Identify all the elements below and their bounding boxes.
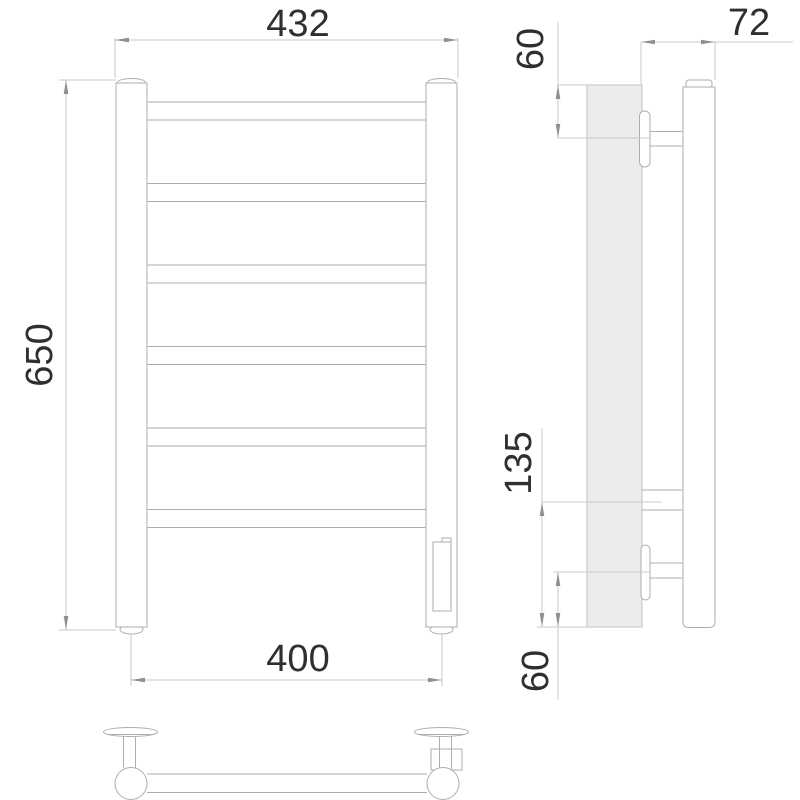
towel-rail-drawing: 432 650 400 bbox=[0, 0, 800, 800]
bottom-view bbox=[104, 728, 469, 800]
bar-6 bbox=[147, 510, 426, 528]
bottom-view-left-post-section bbox=[115, 768, 147, 800]
dimension-overall-width: 432 bbox=[115, 3, 458, 78]
dimension-depth: 72 bbox=[641, 2, 793, 85]
side-view bbox=[587, 80, 715, 628]
wall-panel bbox=[587, 85, 642, 627]
mounting-width-label: 400 bbox=[266, 638, 329, 680]
switch-box bbox=[433, 542, 451, 611]
bar-5 bbox=[147, 428, 426, 446]
lower-connection-offset-label: 135 bbox=[498, 431, 540, 494]
overall-height-label: 650 bbox=[19, 323, 61, 386]
drawing-canvas: 432 650 400 bbox=[0, 0, 800, 800]
bar-1 bbox=[147, 102, 426, 120]
front-view bbox=[116, 79, 457, 635]
bottom-view-switch-housing bbox=[431, 749, 462, 770]
depth-label: 72 bbox=[728, 2, 770, 44]
overall-width-label: 432 bbox=[266, 3, 329, 45]
bar-3 bbox=[147, 265, 426, 283]
dimension-mounting-width: 400 bbox=[131, 633, 442, 686]
bottom-bracket-offset-label: 60 bbox=[515, 650, 557, 692]
top-bracket-offset-label: 60 bbox=[510, 28, 552, 70]
bottom-view-right-post-section bbox=[427, 768, 459, 800]
dimension-overall-height: 650 bbox=[19, 80, 116, 630]
left-post bbox=[116, 83, 147, 627]
side-post bbox=[683, 87, 715, 628]
bar-4 bbox=[147, 347, 426, 365]
bottom-view-left-flange bbox=[104, 728, 158, 737]
top-bracket-flange bbox=[640, 111, 651, 167]
bar-2 bbox=[147, 184, 426, 202]
bottom-view-right-flange bbox=[415, 728, 469, 737]
